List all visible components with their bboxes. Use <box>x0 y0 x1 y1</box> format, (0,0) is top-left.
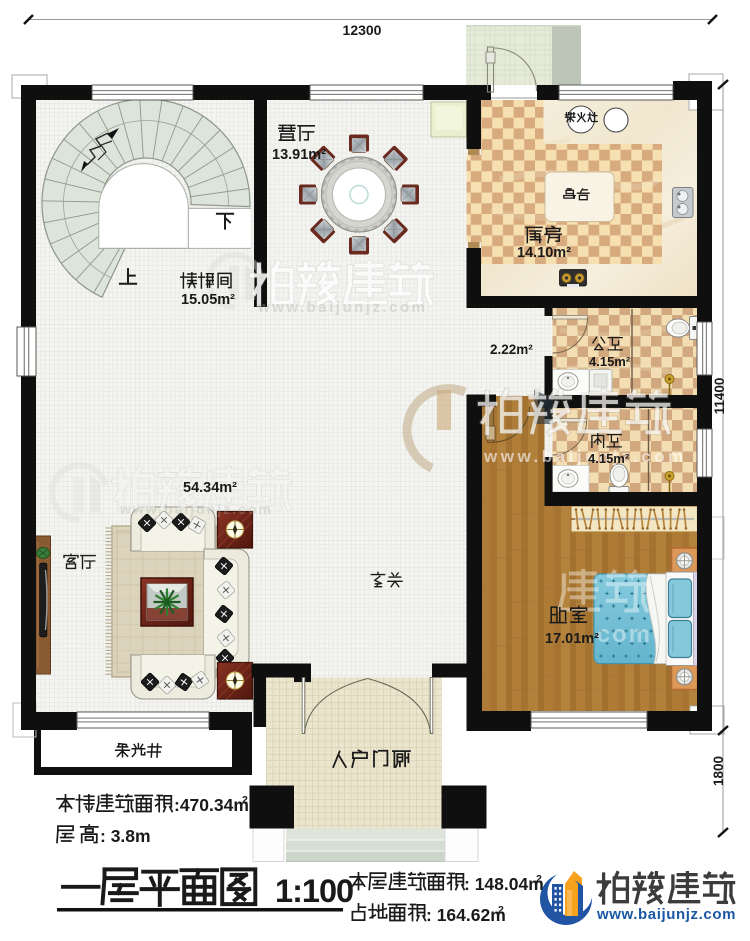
svg-text:www.baijunjz.com: www.baijunjz.com <box>483 447 687 466</box>
svg-text:15.05m²: 15.05m² <box>181 292 235 308</box>
svg-text:54.34m²: 54.34m² <box>183 480 237 496</box>
svg-text:13.91m²: 13.91m² <box>272 147 326 163</box>
svg-text:2.22m²: 2.22m² <box>490 342 533 357</box>
svg-text:12300: 12300 <box>343 22 382 38</box>
svg-text:2: 2 <box>536 873 542 885</box>
svg-text:1800: 1800 <box>711 756 726 786</box>
svg-text:www.baijunjz.com: www.baijunjz.com <box>596 906 736 923</box>
svg-text::470.34m: :470.34m <box>174 795 249 815</box>
svg-text:17.01m²: 17.01m² <box>545 631 599 647</box>
svg-text:: 164.62m: : 164.62m <box>426 905 506 925</box>
svg-text:2: 2 <box>242 794 248 806</box>
svg-text:4.15m²: 4.15m² <box>589 354 631 369</box>
svg-text:www.baijunjz.com: www.baijunjz.com <box>119 501 273 517</box>
svg-text:2: 2 <box>498 904 504 916</box>
svg-text:: 148.04m: : 148.04m <box>464 874 544 894</box>
svg-text:: 3.8m: : 3.8m <box>100 826 151 846</box>
svg-text:www.baijunjz.com: www.baijunjz.com <box>257 299 427 316</box>
svg-text:1:100: 1:100 <box>275 873 353 909</box>
svg-text:14.10m²: 14.10m² <box>517 245 571 261</box>
svg-text:11400: 11400 <box>712 378 727 415</box>
svg-text:4.15m²: 4.15m² <box>588 451 630 466</box>
